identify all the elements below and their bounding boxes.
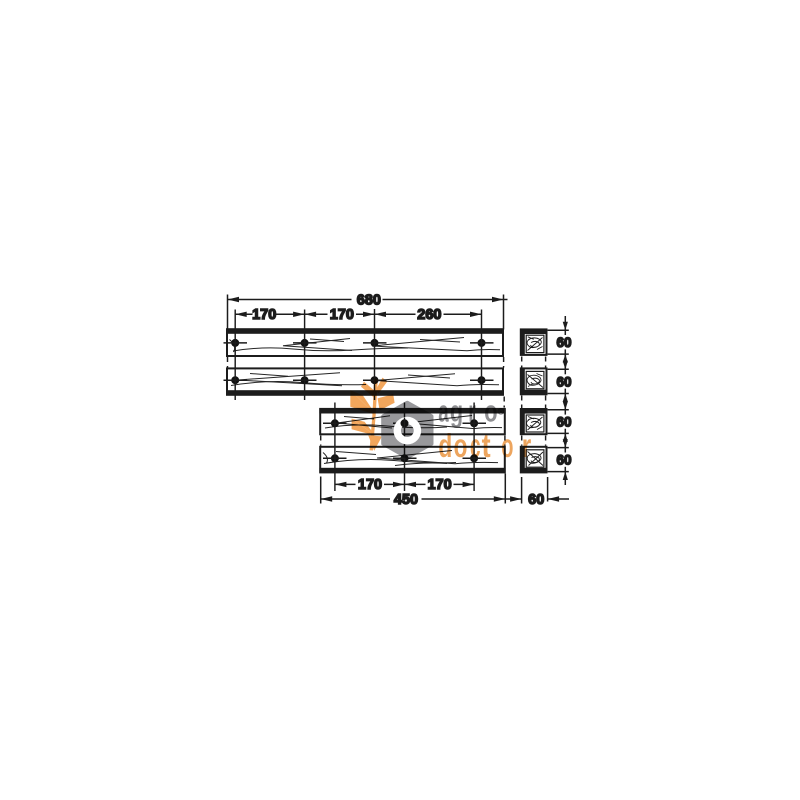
svg-text:260: 260 — [417, 307, 441, 323]
svg-text:d: d — [438, 427, 452, 464]
svg-text:450: 450 — [394, 492, 418, 508]
svg-text:t: t — [482, 427, 491, 464]
svg-text:a: a — [438, 394, 449, 429]
svg-text:g: g — [450, 394, 463, 429]
svg-text:60: 60 — [556, 415, 571, 430]
svg-text:680: 680 — [357, 293, 381, 309]
svg-text:170: 170 — [358, 477, 382, 493]
svg-text:r: r — [468, 394, 476, 429]
svg-text:o: o — [501, 427, 513, 464]
svg-text:o: o — [484, 394, 497, 429]
svg-text:c: c — [470, 427, 481, 464]
svg-text:60: 60 — [556, 335, 571, 350]
svg-text:60: 60 — [528, 492, 544, 508]
svg-text:o: o — [454, 427, 468, 464]
svg-text:60: 60 — [556, 453, 571, 468]
svg-text:170: 170 — [252, 307, 276, 323]
svg-text:170: 170 — [427, 477, 451, 493]
svg-text:170: 170 — [330, 307, 354, 323]
svg-text:r: r — [522, 427, 532, 464]
svg-text:60: 60 — [556, 374, 571, 389]
